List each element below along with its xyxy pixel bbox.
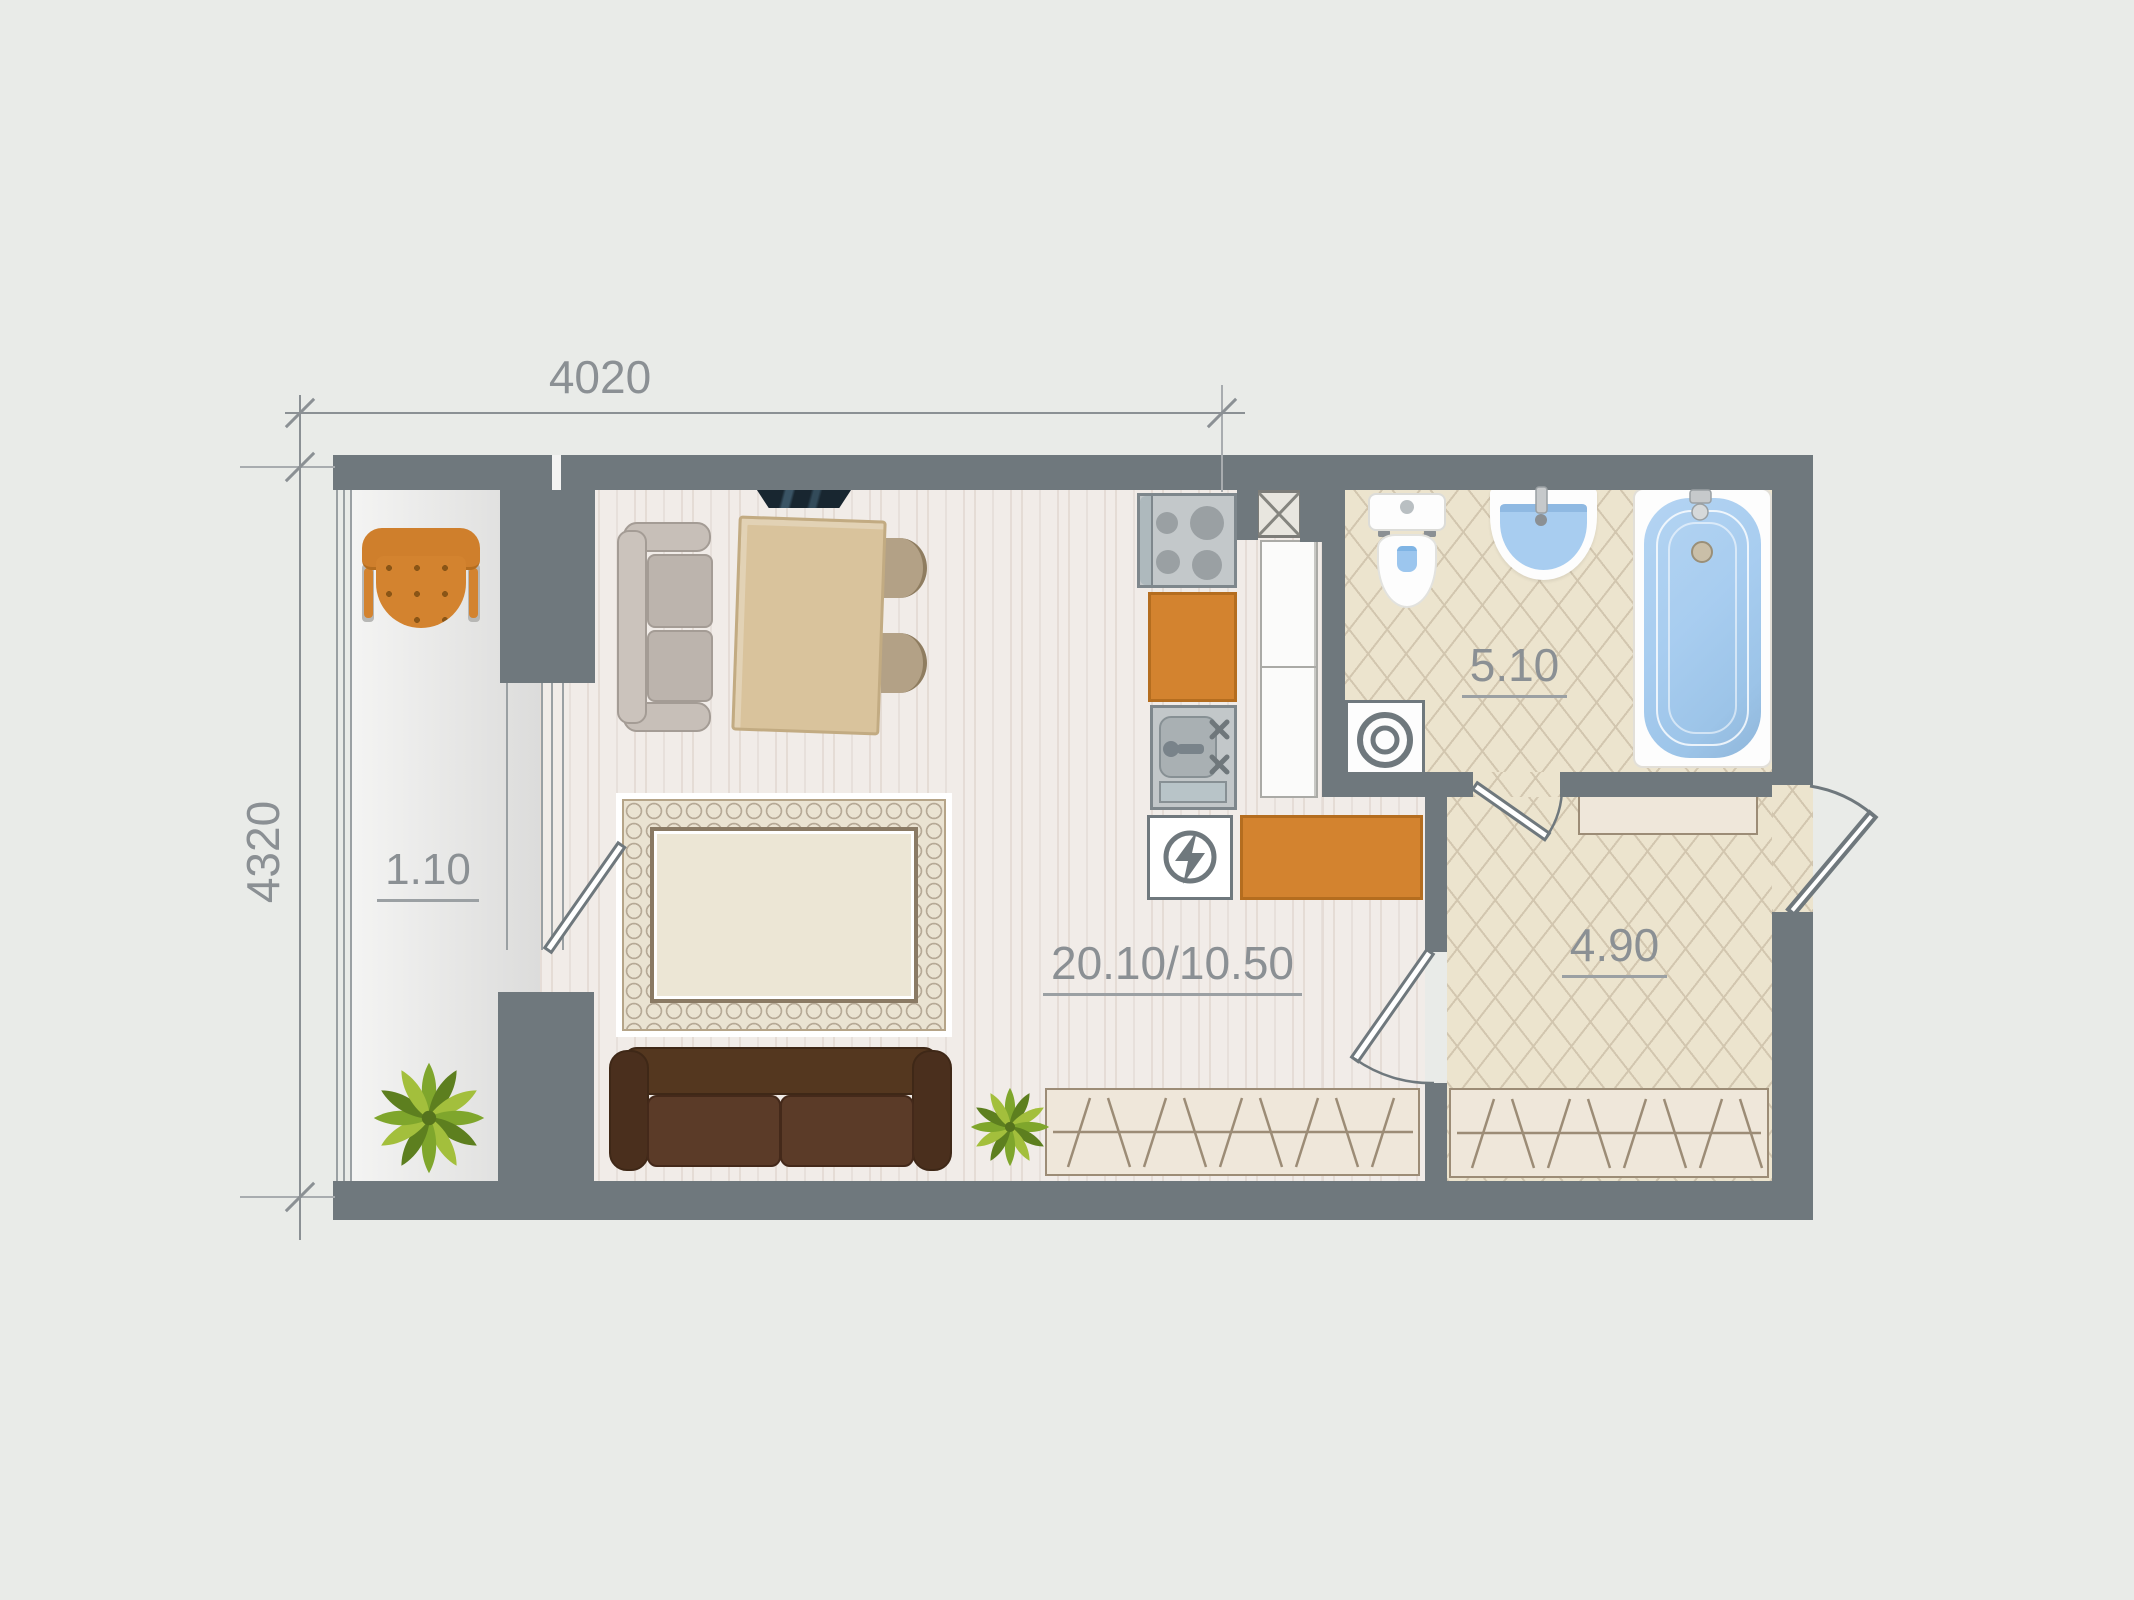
extension-line [240, 1196, 335, 1198]
vent-shaft [1256, 490, 1302, 538]
tall-cabinet [1260, 540, 1318, 798]
wall-balcony-pillar-top [500, 490, 595, 683]
electric-panel [1147, 815, 1233, 900]
extension-line [240, 466, 335, 468]
bathtub [1633, 488, 1772, 768]
balcony-area-label: 1.10 [368, 848, 488, 902]
armchair-arm-right-pad [469, 568, 478, 618]
balcony-partition-line [541, 683, 543, 950]
stove-burner [1192, 550, 1222, 580]
wall-hallway-left-lower [1425, 1083, 1447, 1181]
wall-bathroom-bottom-left [1322, 772, 1473, 797]
loveseat-cushion [647, 630, 713, 702]
wall-hallway-left-upper [1425, 797, 1447, 952]
washbasin [1490, 488, 1597, 580]
floor-plan: 4020 4320 1.10 20.10/10.50 5.10 4.90 [0, 0, 2134, 1600]
loveseat-cushion [647, 554, 713, 628]
extension-line [1221, 385, 1223, 492]
kitchen-counter [1240, 815, 1423, 900]
wall-bathroom-bottom-right [1560, 772, 1772, 797]
balcony-window-line [343, 490, 345, 1181]
living-area-label: 20.10/10.50 [1030, 940, 1315, 996]
sofa [609, 1047, 952, 1176]
wall-top-window-slit [552, 455, 561, 490]
stove-burner [1190, 506, 1224, 540]
toilet-flush-button [1400, 500, 1414, 514]
wall-kitchen-right-of-vent [1300, 490, 1322, 542]
wall-right-upper [1772, 455, 1813, 785]
toilet [1368, 493, 1446, 609]
tv [755, 487, 853, 508]
rug-border-band [622, 799, 946, 1031]
dimension-value: 4320 [237, 801, 289, 903]
toilet-bowl [1377, 534, 1437, 608]
stove-burner [1156, 550, 1180, 574]
bathtub-rim-inner [1668, 522, 1737, 734]
stove-burner [1156, 512, 1178, 534]
dimension-label-top: 4020 [450, 354, 750, 400]
kitchen-sink [1150, 705, 1237, 810]
bathtub-basin [1644, 498, 1761, 758]
wall-bathroom-left [1322, 490, 1345, 775]
loveseat [617, 522, 717, 732]
balcony-partition-line [551, 683, 553, 950]
kitchen-cabinet [1148, 592, 1237, 702]
armchair-seat [376, 556, 466, 628]
wall-bottom [333, 1181, 1813, 1220]
sofa-cushion [780, 1095, 914, 1167]
balcony-window-line [336, 490, 338, 1181]
washing-machine [1345, 700, 1425, 780]
entry-door-threshold [1772, 785, 1813, 912]
toilet-bowl-inner [1397, 546, 1417, 572]
sink-drawer [1159, 781, 1227, 803]
rug-field [657, 834, 911, 996]
area-value: 1.10 [377, 848, 479, 902]
area-value: 4.90 [1562, 922, 1668, 978]
sofa-arm-left [609, 1050, 649, 1171]
dimension-label-left: 4320 [240, 767, 290, 937]
sofa-cushion [647, 1095, 781, 1167]
hallway-area-label: 4.90 [1552, 922, 1677, 978]
stove [1137, 493, 1237, 588]
sofa-back [623, 1047, 938, 1095]
stove-handle [1140, 496, 1153, 585]
sofa-arm-right [912, 1050, 952, 1171]
bathroom-area-label: 5.10 [1452, 642, 1577, 698]
loveseat-back [617, 530, 647, 724]
dimension-value: 4020 [549, 351, 651, 403]
balcony-window-line [350, 490, 352, 1181]
armchair-arm-left-pad [364, 568, 373, 618]
sink-basin [1159, 716, 1217, 778]
area-value: 20.10/10.50 [1043, 940, 1302, 996]
wall-right-lower [1772, 912, 1813, 1220]
balcony-partition-line [506, 683, 508, 950]
area-value: 5.10 [1462, 642, 1568, 698]
wardrobe [1045, 1088, 1420, 1176]
dining-table [731, 515, 886, 735]
dimension-line-left [299, 395, 301, 1240]
wall-balcony-pillar-bottom [498, 992, 594, 1181]
bathroom-door-threshold [1473, 772, 1560, 797]
cabinet-divider [1262, 666, 1316, 668]
wardrobe [1449, 1088, 1769, 1178]
rug [616, 793, 952, 1037]
rug-inner-frame [650, 827, 918, 1003]
wall-kitchen-left-of-vent [1237, 490, 1258, 540]
dimension-line-top [285, 412, 1245, 414]
armchair [362, 528, 480, 628]
shelf [1578, 795, 1758, 835]
balcony-partition-line [562, 683, 564, 950]
